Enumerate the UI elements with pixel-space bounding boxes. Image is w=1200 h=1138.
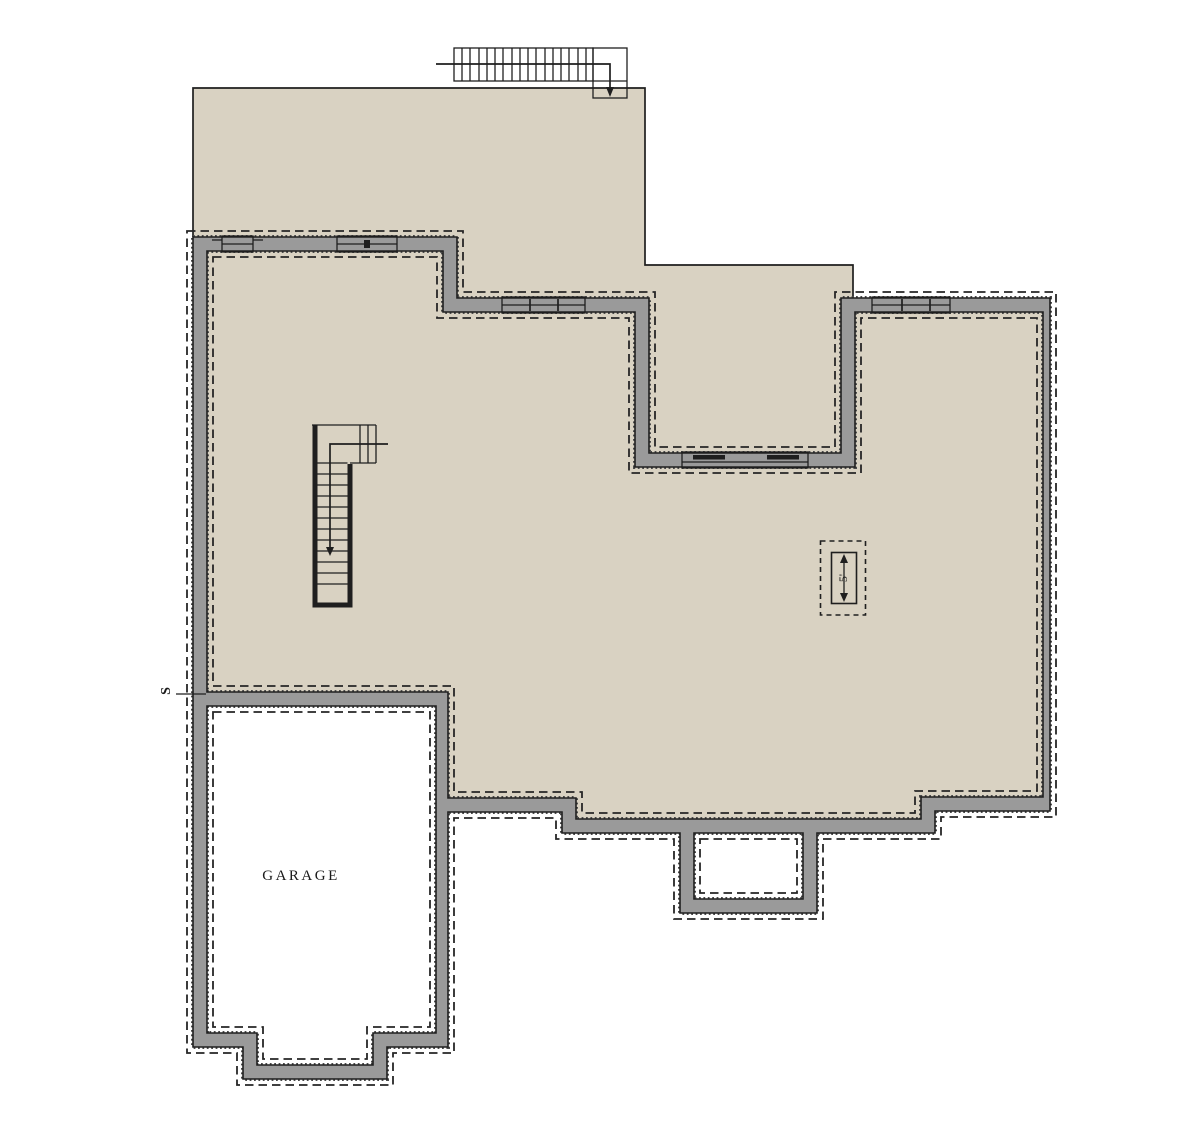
marker-label: S — [159, 687, 174, 695]
floor-plan-page: 5' S GARAGE — [0, 0, 1200, 1138]
floor-fill — [193, 88, 1050, 833]
garage-label: GARAGE — [262, 868, 340, 884]
dimension-label: 5' — [836, 574, 850, 582]
floor-plan-svg: 5' S GARAGE — [0, 0, 1200, 1138]
